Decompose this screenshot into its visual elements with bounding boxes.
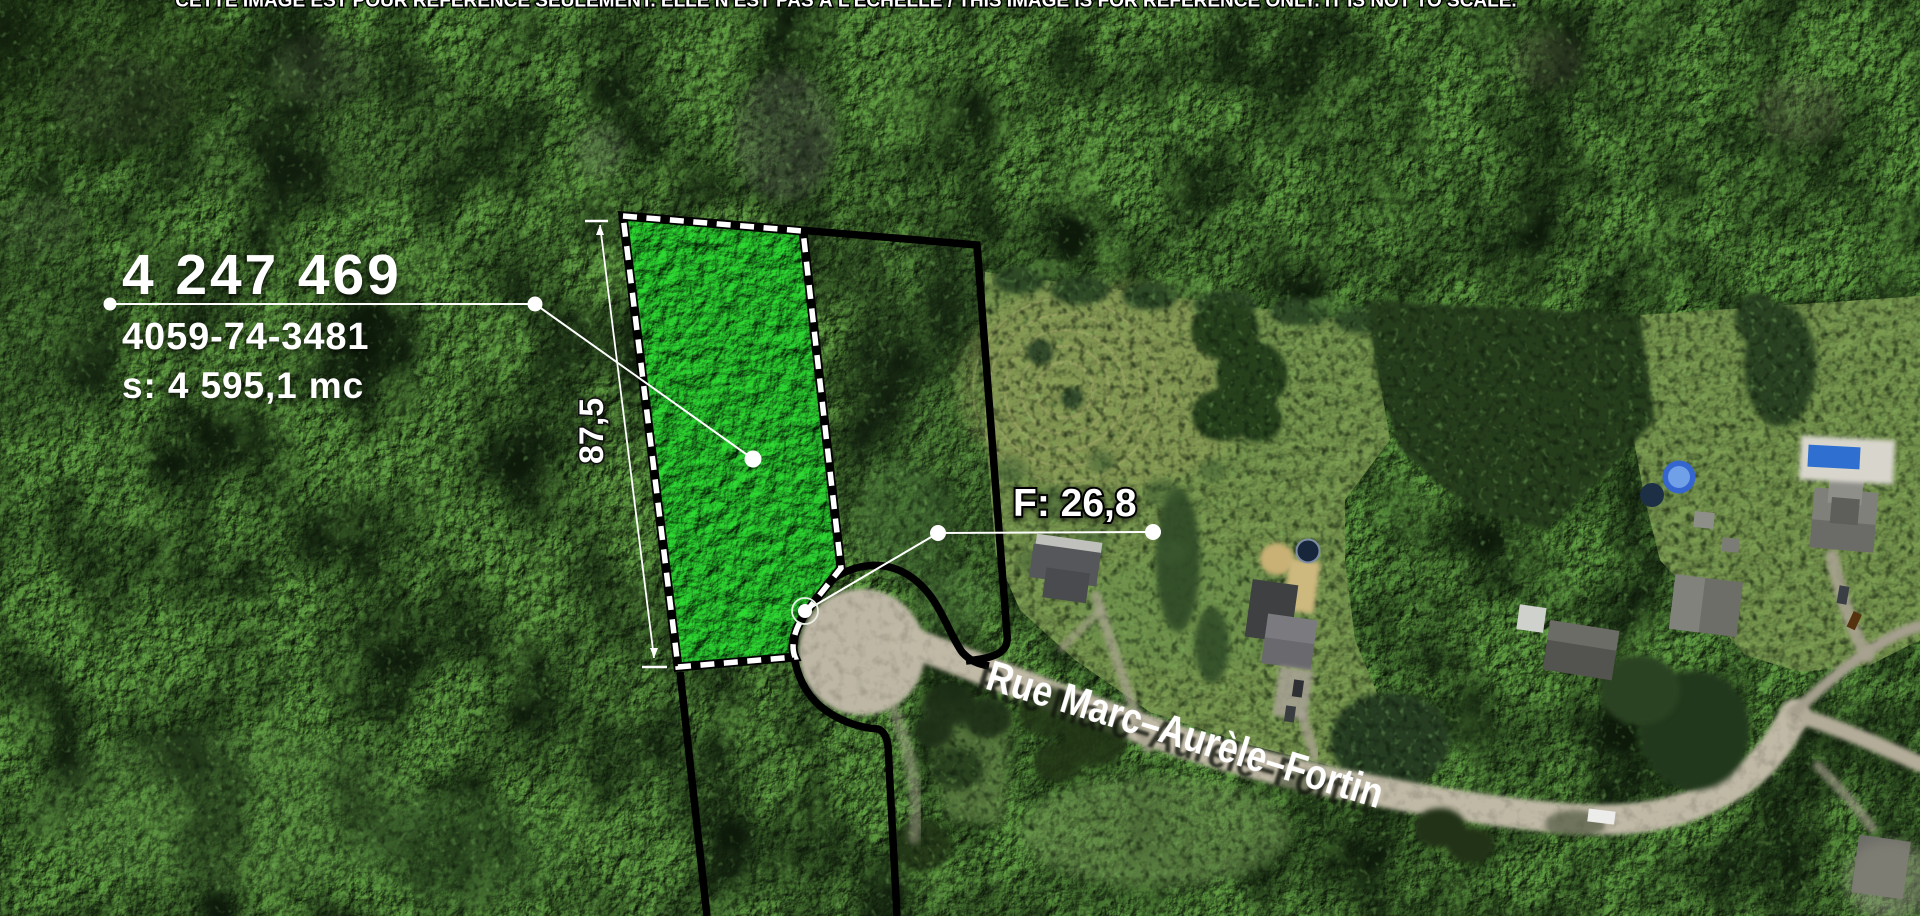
svg-text:4 247 469: 4 247 469 (122, 243, 402, 307)
svg-text:CETTE IMAGE EST POUR RÉFÉRENCE: CETTE IMAGE EST POUR RÉFÉRENCE SEULEMENT… (175, 0, 1516, 12)
svg-text:87,5: 87,5 (573, 398, 611, 464)
svg-text:4059-74-3481: 4059-74-3481 (122, 316, 369, 358)
svg-text:F: 26,8: F: 26,8 (1013, 482, 1137, 525)
svg-text:s: 4 595,1 mc: s: 4 595,1 mc (122, 365, 364, 406)
